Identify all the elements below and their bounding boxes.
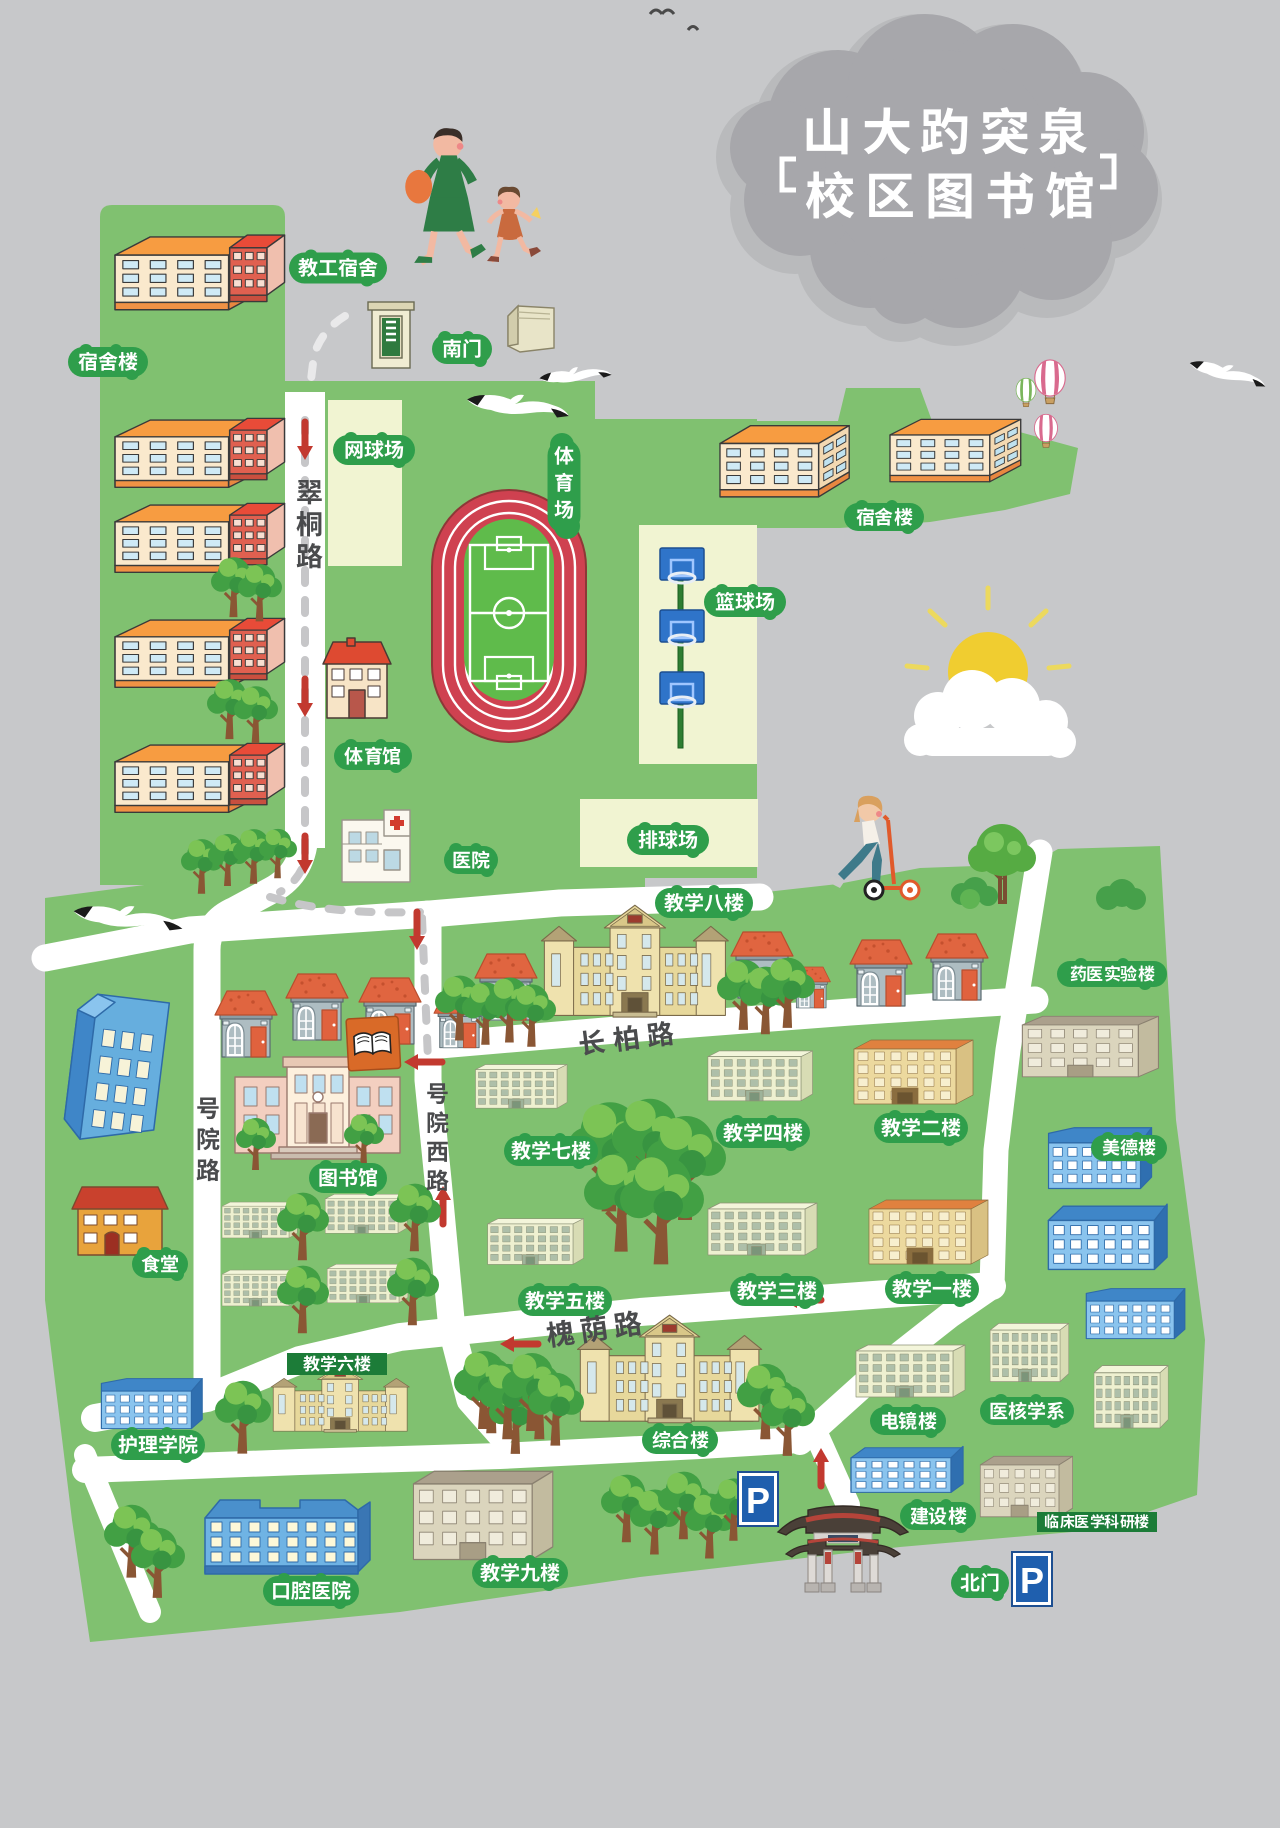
- svg-text:P: P: [746, 1480, 770, 1521]
- svg-text:P: P: [1020, 1560, 1044, 1601]
